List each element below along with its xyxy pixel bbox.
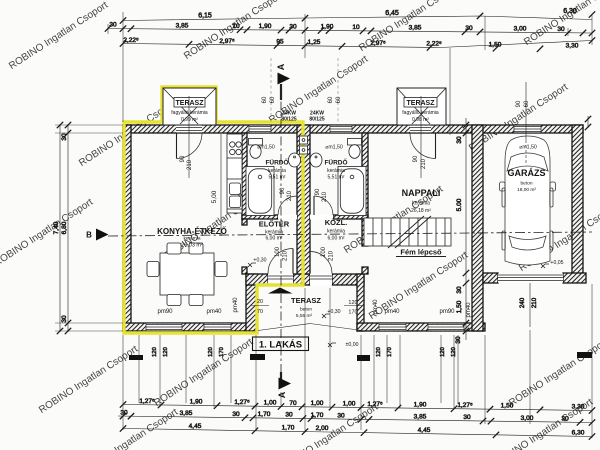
svg-text:FÜRDŐ: FÜRDŐ: [265, 158, 288, 167]
svg-text:20: 20: [257, 299, 263, 305]
svg-text:1,50: 1,50: [489, 41, 502, 48]
svg-text:pm40: pm40: [206, 309, 222, 315]
svg-text:1,00: 1,00: [311, 400, 324, 407]
svg-text:90: 90: [180, 155, 186, 162]
svg-text:90: 90: [315, 188, 321, 195]
svg-text:4,45: 4,45: [189, 423, 202, 430]
svg-text:95: 95: [276, 39, 284, 46]
svg-text:30: 30: [557, 26, 565, 33]
svg-text:3,30: 3,30: [566, 42, 579, 49]
svg-text:1,70: 1,70: [311, 412, 324, 419]
svg-text:+0,30: +0,30: [253, 258, 266, 264]
svg-text:30: 30: [109, 22, 117, 29]
svg-text:120: 120: [208, 347, 214, 357]
svg-text:30: 30: [456, 136, 463, 144]
svg-text:70: 70: [257, 309, 263, 315]
svg-text:120: 120: [152, 347, 158, 357]
svg-text:7,40: 7,40: [53, 221, 60, 234]
svg-text:3,85: 3,85: [176, 22, 189, 29]
svg-text:1,27⁵: 1,27⁵: [139, 398, 155, 405]
svg-text:210: 210: [283, 250, 289, 261]
svg-text:30: 30: [455, 336, 462, 344]
svg-text:kerámia: kerámia: [327, 229, 345, 235]
svg-text:2,22⁵: 2,22⁵: [426, 41, 442, 48]
svg-text:1,70: 1,70: [258, 411, 271, 418]
svg-text:fagyálló kerámia: fagyálló kerámia: [402, 110, 439, 116]
svg-text:210: 210: [329, 250, 335, 261]
svg-text:6,30: 6,30: [572, 429, 585, 436]
svg-text:210: 210: [421, 158, 427, 169]
svg-text:5,51 m²: 5,51 m²: [269, 175, 286, 181]
svg-text:pm40: pm40: [384, 309, 400, 315]
svg-text:80/125: 80/125: [281, 117, 297, 123]
svg-text:30: 30: [61, 315, 68, 323]
svg-text:beton: beton: [300, 307, 312, 313]
svg-text:3,30: 3,30: [572, 404, 585, 411]
svg-text:5,00: 5,00: [211, 190, 218, 203]
svg-text:4,45: 4,45: [418, 427, 431, 434]
svg-text:170: 170: [219, 347, 225, 357]
svg-text:kerámia: kerámia: [327, 168, 345, 174]
svg-text:30: 30: [337, 412, 345, 419]
svg-text:⌀m1,50: ⌀m1,50: [257, 145, 275, 151]
svg-text:3,00: 3,00: [514, 26, 527, 33]
svg-text:+0,05: +0,05: [550, 260, 563, 266]
svg-text:26,18 m²: 26,18 m²: [411, 208, 431, 214]
svg-text:18,00 m²: 18,00 m²: [517, 187, 536, 193]
svg-text:kerámia: kerámia: [268, 168, 286, 174]
svg-text:100: 100: [321, 246, 327, 257]
svg-text:170: 170: [387, 347, 393, 357]
svg-text:2,97⁵: 2,97⁵: [219, 38, 235, 45]
svg-text:6,00 m²: 6,00 m²: [266, 236, 283, 242]
svg-text:6,00 m²: 6,00 m²: [328, 236, 345, 242]
svg-text:⌀m1,50: ⌀m1,50: [325, 145, 343, 151]
svg-text:pm90: pm90: [439, 309, 455, 315]
svg-text:1,00: 1,00: [264, 400, 277, 407]
svg-text:1,90: 1,90: [414, 401, 427, 408]
svg-text:TERASZ: TERASZ: [291, 296, 321, 305]
svg-text:fagyálló kerámia: fagyálló kerámia: [171, 110, 208, 116]
svg-text:90: 90: [516, 100, 522, 107]
svg-text:1,25: 1,25: [308, 39, 321, 46]
svg-text:30: 30: [289, 23, 297, 30]
svg-text:30: 30: [285, 412, 293, 419]
svg-text:120: 120: [348, 300, 357, 306]
svg-text:30: 30: [120, 409, 128, 416]
svg-text:120: 120: [376, 347, 382, 357]
svg-text:±0,00: ±0,00: [346, 342, 359, 348]
svg-text:1,90: 1,90: [190, 399, 203, 406]
svg-text:5,55 m²: 5,55 m²: [296, 313, 313, 319]
svg-text:kerámia: kerámia: [412, 201, 430, 207]
svg-text:60: 60: [328, 96, 334, 103]
svg-text:120: 120: [163, 347, 169, 357]
svg-text:1,50: 1,50: [501, 403, 514, 410]
svg-text:1,90: 1,90: [321, 24, 334, 31]
svg-text:⌀m1,50: ⌀m1,50: [519, 145, 537, 151]
svg-text:60: 60: [270, 96, 276, 103]
svg-text:30: 30: [61, 133, 68, 141]
svg-text:30: 30: [465, 25, 473, 32]
svg-text:pm40: pm40: [466, 302, 472, 318]
svg-text:pm40: pm40: [233, 297, 239, 313]
svg-text:100: 100: [275, 246, 281, 257]
svg-text:+0,30: +0,30: [327, 309, 340, 315]
svg-text:0,98 m²: 0,98 m²: [412, 117, 429, 123]
svg-text:90: 90: [280, 187, 286, 194]
svg-text:KÖZL.: KÖZL.: [325, 218, 348, 227]
svg-text:1,50: 1,50: [456, 300, 463, 313]
svg-text:60: 60: [524, 100, 530, 107]
svg-text:FÜRDŐ: FÜRDŐ: [324, 158, 347, 167]
svg-text:3,00: 3,00: [521, 415, 534, 422]
svg-text:KONYHA-ÉTKEZŐ: KONYHA-ÉTKEZŐ: [157, 227, 227, 236]
svg-text:210: 210: [322, 191, 328, 202]
svg-text:6,80: 6,80: [61, 221, 68, 234]
svg-text:30: 30: [232, 411, 240, 418]
svg-text:80/125: 80/125: [309, 117, 325, 123]
svg-text:0,99 m²: 0,99 m²: [181, 117, 198, 123]
svg-text:TERASZ: TERASZ: [176, 100, 205, 107]
svg-text:NAPPALI: NAPPALI: [402, 188, 441, 198]
svg-text:6,30: 6,30: [563, 8, 577, 15]
svg-text:240: 240: [519, 297, 526, 308]
svg-text:1,70: 1,70: [282, 425, 295, 432]
svg-text:26,03 m²: 26,03 m²: [181, 243, 203, 249]
svg-text:2,22⁵: 2,22⁵: [123, 37, 139, 44]
svg-text:120: 120: [440, 347, 446, 357]
svg-text:1,27⁵: 1,27⁵: [457, 402, 473, 409]
svg-text:5.00: 5.00: [456, 198, 463, 211]
svg-text:6,45: 6,45: [385, 10, 399, 17]
svg-text:60: 60: [336, 96, 342, 103]
svg-text:2,97⁵: 2,97⁵: [370, 40, 386, 47]
svg-text:TERASZ: TERASZ: [407, 100, 436, 107]
svg-text:beton: beton: [520, 181, 532, 187]
svg-text:5,51 m²: 5,51 m²: [328, 175, 345, 181]
svg-text:1,00: 1,00: [343, 401, 356, 408]
svg-text:210: 210: [287, 190, 293, 201]
svg-text:A: A: [277, 391, 287, 398]
svg-text:90: 90: [413, 155, 419, 162]
svg-text:6,15: 6,15: [198, 12, 212, 19]
svg-text:210: 210: [531, 297, 538, 308]
svg-text:1. LAKÁS: 1. LAKÁS: [259, 340, 302, 351]
svg-text:1,27⁵: 1,27⁵: [234, 399, 250, 406]
svg-text:2,00: 2,00: [316, 425, 329, 432]
svg-text:30: 30: [456, 286, 463, 294]
svg-text:3,85: 3,85: [414, 413, 427, 420]
svg-text:1,27⁵: 1,27⁵: [367, 401, 383, 408]
svg-text:10: 10: [352, 24, 360, 31]
svg-text:60: 60: [262, 96, 268, 103]
svg-text:ELŐTÉR: ELŐTÉR: [259, 220, 290, 229]
svg-text:10: 10: [232, 23, 240, 30]
svg-text:170: 170: [348, 310, 357, 316]
svg-text:pm90: pm90: [157, 309, 173, 315]
svg-text:3,85: 3,85: [409, 25, 422, 32]
svg-text:120: 120: [451, 347, 457, 357]
svg-text:3,85: 3,85: [180, 410, 193, 417]
svg-text:30: 30: [561, 415, 569, 422]
svg-text:A: A: [276, 63, 286, 70]
svg-text:Fém lépcső: Fém lépcső: [400, 248, 442, 257]
svg-text:1,90: 1,90: [259, 23, 272, 30]
svg-text:kerámia: kerámia: [183, 236, 200, 242]
svg-text:210: 210: [187, 159, 193, 170]
svg-text:GARÁZS: GARÁZS: [508, 168, 546, 178]
svg-text:pm40: pm40: [373, 299, 379, 315]
svg-text:B: B: [86, 231, 92, 240]
svg-text:30: 30: [463, 414, 471, 421]
svg-text:70: 70: [289, 400, 297, 407]
